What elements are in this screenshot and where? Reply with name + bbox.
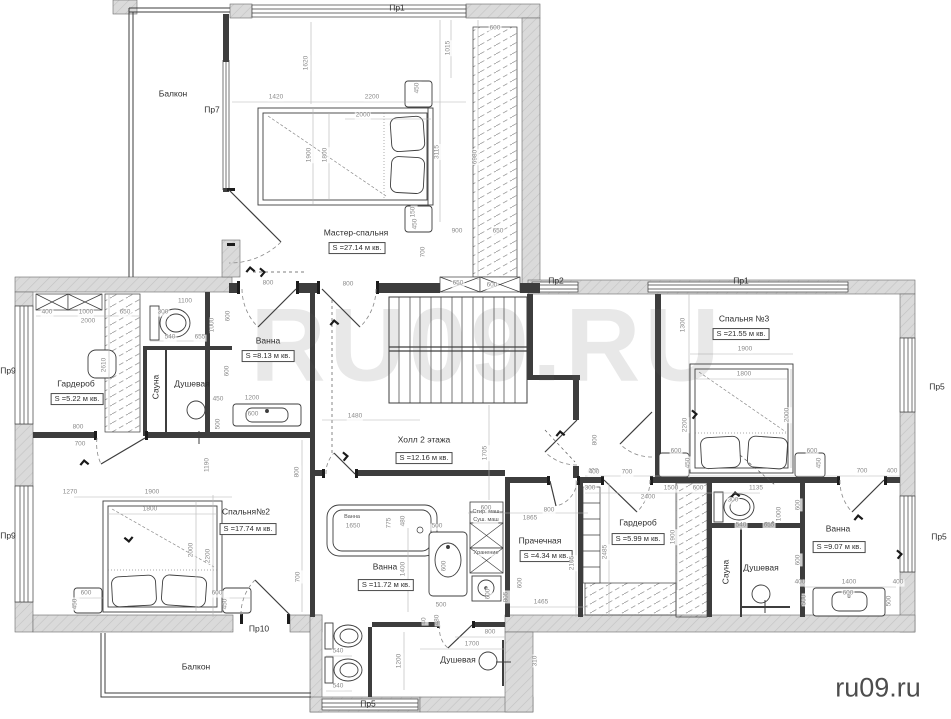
- dimension-label: 600: [518, 577, 525, 590]
- dimension-label: 650: [492, 229, 505, 236]
- dimension-label: 540: [164, 335, 177, 342]
- dimension-label: 1500: [663, 486, 679, 493]
- dimension-label: 500: [802, 594, 809, 607]
- room-label: Душевая: [440, 656, 476, 665]
- dimension-label: 600: [226, 310, 233, 323]
- dimension-label: 600: [670, 449, 683, 456]
- dimension-label: 1000: [78, 310, 94, 317]
- window-label: Пр5: [360, 700, 376, 709]
- room-label: Гардероб: [57, 380, 94, 389]
- area-label: S =17.74 м кв.: [220, 523, 277, 535]
- dimension-label: 655: [763, 523, 776, 530]
- dimension-label: 600: [225, 365, 232, 378]
- dimension-label: 1015: [446, 40, 453, 56]
- dimension-label: 700: [296, 571, 303, 584]
- area-label: S =8.13 м кв.: [242, 350, 295, 362]
- dimension-label: 2400: [640, 495, 656, 502]
- dimension-label: 800: [342, 282, 355, 289]
- dimension-label: 2000: [355, 113, 371, 120]
- dimension-label: 400: [794, 580, 807, 587]
- area-label: S =5.99 м кв.: [612, 533, 665, 545]
- room-label: Душевая: [174, 380, 210, 389]
- dimension-label: 300: [157, 310, 170, 317]
- dimension-label: 3115: [435, 144, 442, 160]
- dimension-label: 2200: [683, 417, 690, 433]
- room-label: Сауна: [152, 375, 161, 400]
- dimension-label: 1480: [347, 414, 363, 421]
- window-label: Пр10: [249, 625, 269, 634]
- window-label: Пр5: [929, 383, 945, 392]
- dimension-label: 1400: [841, 580, 857, 587]
- area-label: S =4.34 м кв.: [520, 550, 573, 562]
- dimension-label: 400: [588, 470, 601, 477]
- dimension-label: 600: [247, 412, 260, 419]
- dimension-label: 1700: [464, 642, 480, 649]
- dimension-label: 1420: [268, 95, 284, 102]
- area-label: S =27.14 м кв.: [329, 242, 386, 254]
- dimension-label: 600: [489, 26, 502, 33]
- dimension-label: 2105: [570, 555, 577, 571]
- room-label: Спальня №3: [719, 315, 769, 324]
- dimension-label: 655: [194, 335, 207, 342]
- dimension-label: 600: [80, 591, 93, 598]
- window-label: Пр7: [204, 106, 220, 115]
- dimension-label: 1135: [748, 486, 764, 493]
- dimension-label: 650: [119, 310, 132, 317]
- dimension-label: 480: [435, 614, 442, 627]
- dimension-label: 600: [796, 554, 803, 567]
- room-label: Холл 2 этажа: [398, 436, 451, 445]
- dimension-label: 700: [856, 469, 869, 476]
- dimension-label: 1900: [144, 490, 160, 497]
- dimension-label: 2610: [102, 357, 109, 373]
- dimension-label: 6980: [473, 149, 480, 165]
- dimension-label: 805: [504, 591, 511, 604]
- dimension-label: 650: [452, 281, 465, 288]
- dimension-label: 2200: [206, 548, 213, 564]
- fixture-label: Ванна: [344, 515, 360, 521]
- area-label: S =9.07 м кв.: [813, 541, 866, 553]
- dimension-label: 400: [892, 580, 905, 587]
- dimension-label: 2485: [603, 544, 610, 560]
- dimension-label: 1270: [62, 490, 78, 497]
- dimension-label: 800: [72, 425, 85, 432]
- dimension-label: 2000: [189, 542, 196, 558]
- dimension-label: 700: [421, 246, 428, 259]
- window-label: Пр9: [0, 532, 16, 541]
- area-label: S =21.55 м кв.: [713, 328, 770, 340]
- dimension-label: 800: [543, 508, 556, 515]
- dimension-label: 800: [262, 281, 275, 288]
- area-label: S =11.72 м кв.: [358, 579, 414, 591]
- floor-plan-canvas: RU09.RU БалконМастер-спальняГардеробДуше…: [0, 0, 951, 719]
- dimension-label: 800: [484, 630, 497, 637]
- dimension-label: 1190: [205, 457, 212, 473]
- dimension-label: 600: [486, 283, 499, 290]
- dimension-label: 600: [806, 449, 819, 456]
- dimension-label: 1705: [483, 445, 490, 461]
- dimension-label: 500: [887, 595, 894, 608]
- dimension-label: 450: [415, 82, 422, 95]
- dimension-label: 450: [413, 218, 420, 231]
- fixture-label: Стир. маш: [473, 510, 500, 516]
- room-label: Ванна: [373, 563, 398, 572]
- dimension-label: 1400: [401, 561, 408, 577]
- dimension-label: 1000: [777, 506, 784, 522]
- room-label: Спальня№2: [222, 508, 270, 517]
- dimension-label: 600: [211, 591, 224, 598]
- dimension-label: 2200: [364, 95, 380, 102]
- dimension-label: 400: [886, 469, 899, 476]
- area-label: S =5.22 м кв.: [51, 393, 104, 405]
- dimension-label: 540: [735, 523, 748, 530]
- dimension-label: 1200: [397, 653, 404, 669]
- window-label: Пр2: [548, 277, 564, 286]
- dimension-label: 300: [584, 486, 597, 493]
- dimension-label: 450: [223, 598, 230, 611]
- window-label: Пр1: [733, 277, 749, 286]
- dimension-label: 310: [533, 655, 540, 668]
- dimension-label: 1800: [142, 507, 158, 514]
- dimension-label: 900: [451, 229, 464, 236]
- dimension-label: 540: [332, 649, 345, 656]
- area-label: S =12.16 м кв.: [396, 452, 453, 464]
- room-label: Душевая: [743, 564, 779, 573]
- room-label: Балкон: [159, 90, 188, 99]
- dimension-label: 1800: [323, 147, 330, 163]
- dimension-label: 600: [442, 560, 449, 573]
- dimension-label: 500: [431, 524, 444, 531]
- dimension-label: 1865: [522, 516, 538, 523]
- dimension-label: 1900: [737, 347, 753, 354]
- window-label: Пр1: [389, 4, 405, 13]
- dimension-label: 1900: [307, 147, 314, 163]
- dimension-label: 480: [401, 515, 408, 528]
- dimension-label: 1465: [533, 600, 549, 607]
- fixture-label: Суш. маш: [473, 518, 498, 524]
- dimension-label: 500: [435, 603, 448, 610]
- dimension-label: 1900: [671, 529, 678, 545]
- room-label: Мастер-спальня: [324, 229, 389, 238]
- dimension-label: 1000: [210, 317, 217, 333]
- fixture-label: Хранение: [473, 551, 498, 557]
- dimension-label: 150: [411, 206, 418, 219]
- dimension-label: 1800: [736, 372, 752, 379]
- room-label: Балкон: [182, 663, 211, 672]
- window-label: Пр9: [0, 367, 16, 376]
- dimension-label: 600: [486, 588, 493, 601]
- window-label: Пр5: [931, 533, 947, 542]
- labels-layer: БалконМастер-спальняГардеробДушеваяВанна…: [0, 0, 951, 719]
- dimension-label: 400: [41, 310, 54, 317]
- dimension-label: 450: [686, 457, 693, 470]
- dimension-label: 40: [422, 616, 429, 625]
- watermark-corner: ru09.ru: [835, 673, 921, 704]
- room-label: Ванна: [826, 525, 851, 534]
- room-label: Ванна: [256, 337, 281, 346]
- dimension-label: 800: [295, 466, 302, 479]
- dimension-label: 1650: [345, 524, 361, 531]
- dimension-label: 800: [593, 434, 600, 447]
- dimension-label: 600: [692, 486, 705, 493]
- dimension-label: 700: [621, 470, 634, 477]
- dimension-label: 450: [817, 457, 824, 470]
- room-label: Сауна: [722, 560, 731, 585]
- dimension-label: 2000: [80, 319, 96, 326]
- dimension-label: 450: [73, 598, 80, 611]
- dimension-label: 700: [74, 442, 87, 449]
- room-label: Прачечная: [519, 537, 562, 546]
- dimension-label: 600: [842, 591, 855, 598]
- dimension-label: 1100: [177, 299, 193, 306]
- dimension-label: 600: [796, 499, 803, 512]
- dimension-label: 540: [332, 684, 345, 691]
- dimension-label: 775: [387, 517, 394, 530]
- dimension-label: 300: [727, 498, 740, 505]
- dimension-label: 1300: [681, 317, 688, 333]
- dimension-label: 1620: [304, 55, 311, 71]
- dimension-label: 1200: [244, 396, 260, 403]
- dimension-label: 450: [212, 397, 225, 404]
- room-label: Гардероб: [619, 519, 656, 528]
- dimension-label: 500: [216, 418, 223, 431]
- dimension-label: 2000: [785, 407, 792, 423]
